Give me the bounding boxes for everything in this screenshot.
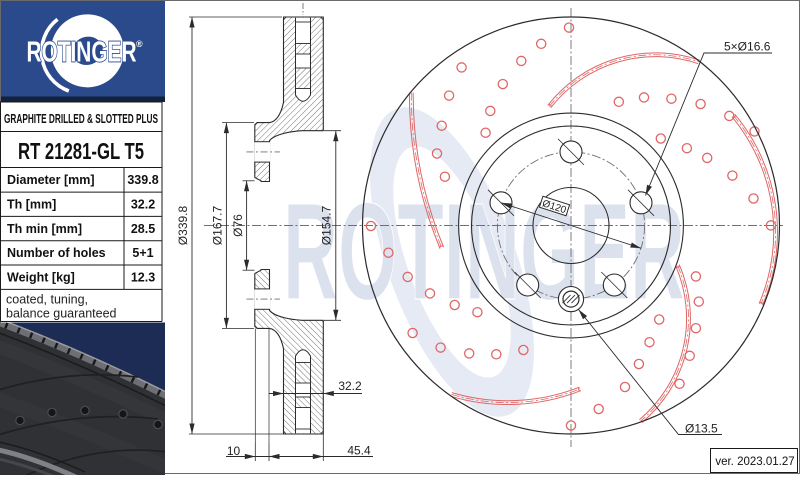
svg-text:Th min [mm]: Th min [mm] <box>7 222 82 236</box>
svg-text:32.2: 32.2 <box>131 198 155 212</box>
svg-text:Ø167.7: Ø167.7 <box>211 205 225 245</box>
svg-text:32.2: 32.2 <box>338 379 362 393</box>
svg-text:balance guaranteed: balance guaranteed <box>6 307 117 321</box>
svg-text:Ø154.7: Ø154.7 <box>320 205 334 245</box>
svg-text:45.4: 45.4 <box>347 444 371 458</box>
svg-text:Number of holes: Number of holes <box>7 246 106 260</box>
svg-text:12.3: 12.3 <box>131 271 155 285</box>
svg-text:Ø76: Ø76 <box>231 214 245 237</box>
svg-text:ROTINGER: ROTINGER <box>283 175 685 329</box>
svg-text:®: ® <box>136 39 143 49</box>
svg-text:Ø339.8: Ø339.8 <box>176 205 190 245</box>
svg-text:GRAPHITE DRILLED & SLOTTED PLU: GRAPHITE DRILLED & SLOTTED PLUS <box>4 112 158 126</box>
svg-text:coated, tuning,: coated, tuning, <box>6 293 88 307</box>
svg-text:339.8: 339.8 <box>127 173 158 187</box>
svg-text:28.5: 28.5 <box>131 222 155 236</box>
svg-text:RT 21281-GL T5: RT 21281-GL T5 <box>18 138 144 164</box>
svg-text:Weight [kg]: Weight [kg] <box>7 271 75 285</box>
svg-text:5×Ø16.6: 5×Ø16.6 <box>724 40 771 54</box>
svg-text:10: 10 <box>227 444 241 458</box>
svg-text:ROTINGER: ROTINGER <box>27 37 137 69</box>
svg-text:Ø13.5: Ø13.5 <box>685 422 718 436</box>
svg-text:Diameter [mm]: Diameter [mm] <box>7 173 95 187</box>
svg-text:ver. 2023.01.27: ver. 2023.01.27 <box>715 456 794 468</box>
svg-text:5+1: 5+1 <box>132 246 153 260</box>
svg-text:Th [mm]: Th [mm] <box>7 198 56 212</box>
